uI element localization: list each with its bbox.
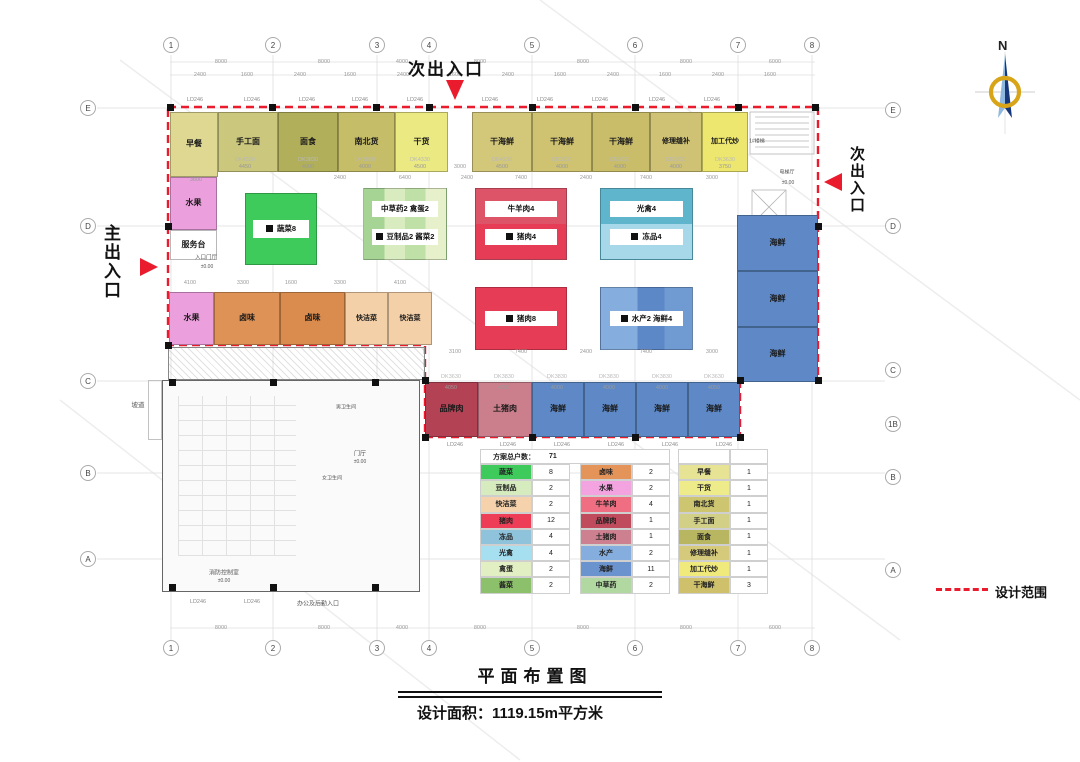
room-label: ±0.00 (201, 264, 213, 270)
table-category-cell: 早餐 (678, 464, 730, 480)
stall: 手工面 (218, 112, 278, 172)
dimension-label: 4450 (239, 164, 251, 170)
dimension-label: 7400 (640, 349, 652, 355)
right-entrance-label: 次出入口 (846, 146, 867, 214)
dimension-label: 2400 (580, 349, 592, 355)
stall-code-label: DK3830 (610, 157, 630, 163)
island-label: 猪肉4 (485, 229, 557, 245)
dimension-label: 3600 (190, 177, 202, 183)
stall-island: 中草药2 禽蛋2豆制品2 酱菜2 (363, 188, 447, 260)
dimension-label: 2400 (334, 175, 346, 181)
grid-bubble: B (885, 469, 901, 485)
dimension-label: 4000 (656, 385, 668, 391)
island-label: 水产2 海鲜4 (610, 311, 683, 327)
window-label: LD246 (190, 599, 206, 605)
island-label: 牛羊肉4 (485, 201, 557, 217)
dimension-label: 2400 (294, 72, 306, 78)
stall: 面食 (278, 112, 338, 172)
grid-bubble: A (885, 562, 901, 578)
table-count-cell: 2 (632, 480, 670, 496)
dimension-label: 3000 (706, 175, 718, 181)
stall-code-label: DK3630 (715, 157, 735, 163)
dimension-label: 6000 (769, 625, 781, 631)
stall-code-label: DK3830 (355, 157, 375, 163)
grid-bubble: 1B (885, 416, 901, 432)
stall: 干海鲜 (472, 112, 532, 172)
grid-bubble: 2 (265, 37, 281, 53)
window-label: LD246 (407, 97, 423, 103)
left-entrance-label: 主出入口 (98, 224, 123, 300)
room-label: 1#楼梯 (749, 138, 765, 145)
table-category-cell: 干海鲜 (678, 577, 730, 593)
table-header-value: 71 (549, 453, 557, 460)
stall: 海鲜 (737, 215, 818, 271)
dimension-label: 7400 (515, 175, 527, 181)
dimension-label: 4000 (302, 164, 314, 170)
window-label: LD246 (537, 97, 553, 103)
stall: 干货 (395, 112, 448, 172)
stall: 快洁菜 (345, 292, 388, 345)
design-scope-legend-line (936, 588, 988, 591)
table-count-cell: 2 (632, 545, 670, 561)
dimension-label: 4000 (498, 385, 510, 391)
window-label: LD246 (352, 97, 368, 103)
window-label: LD246 (554, 442, 570, 448)
grid-bubble: 8 (804, 37, 820, 53)
stall: 南北货 (338, 112, 395, 172)
dimension-label: 3300 (237, 280, 249, 286)
window-label: LD246 (187, 97, 203, 103)
island-marker-icon (621, 315, 628, 322)
column-marker (632, 104, 639, 111)
table-count-cell: 1 (632, 513, 670, 529)
column-marker (737, 377, 744, 384)
column-marker (167, 104, 174, 111)
dimension-label: 8000 (474, 625, 486, 631)
dimension-label: 8000 (680, 59, 692, 65)
room-label: ±0.00 (354, 459, 366, 465)
table-header-empty (678, 449, 730, 464)
stall: 海鲜 (737, 327, 818, 382)
grid-bubble: 4 (421, 37, 437, 53)
stall: 早餐 (170, 112, 218, 177)
table-count-cell: 4 (532, 545, 570, 561)
stall: 水果 (169, 292, 214, 345)
column-marker (372, 584, 379, 591)
dimension-label: 8000 (680, 625, 692, 631)
window-label: LD246 (662, 442, 678, 448)
dimension-label: 1600 (554, 72, 566, 78)
dimension-label: 4000 (556, 164, 568, 170)
island-label-text: 水产2 海鲜4 (632, 313, 672, 324)
dimension-label: 4000 (396, 625, 408, 631)
island-marker-icon (506, 233, 513, 240)
window-label: LD246 (608, 442, 624, 448)
compass-north-label: N (998, 38, 1007, 53)
dimension-label: 4000 (614, 164, 626, 170)
window-label: LD246 (649, 97, 665, 103)
grid-bubble: 3 (369, 640, 385, 656)
column-marker (422, 377, 429, 384)
top-entrance-label: 次出入口 (408, 55, 484, 80)
stall-code-label: DK3830 (547, 374, 567, 380)
dimension-label: 8000 (318, 59, 330, 65)
dimension-label: 8000 (577, 59, 589, 65)
island-label: 中草药2 禽蛋2 (372, 201, 438, 217)
room-label: 门厅 (354, 449, 366, 458)
stall-code-label: DK3830 (599, 374, 619, 380)
plan-layers: 早餐手工面面食南北货干货干海鲜干海鲜干海鲜修理缝补加工代炒水果服务台水果卤味卤味… (0, 0, 1080, 762)
table-count-cell: 1 (730, 529, 768, 545)
table-count-cell: 1 (632, 529, 670, 545)
table-category-cell: 海鲜 (580, 561, 632, 577)
column-marker (815, 223, 822, 230)
grid-bubble: A (80, 551, 96, 567)
table-category-cell: 豆制品 (480, 480, 532, 496)
dimension-label: 6400 (399, 175, 411, 181)
stall-island: 蔬菜8 (245, 193, 317, 265)
room-label: ±0.00 (782, 180, 794, 186)
stall: 卤味 (214, 292, 280, 345)
window-label: LD246 (482, 97, 498, 103)
column-marker (169, 379, 176, 386)
island-marker-icon (266, 225, 273, 232)
table-category-cell: 修理缝补 (678, 545, 730, 561)
grid-bubble: 6 (627, 640, 643, 656)
column-marker (165, 223, 172, 230)
column-marker (815, 377, 822, 384)
island-label-text: 猪肉8 (517, 313, 536, 324)
grid-bubble: B (80, 465, 96, 481)
island-label-text: 蔬菜8 (277, 223, 296, 234)
dimension-label: 4000 (551, 385, 563, 391)
dimension-label: 7400 (640, 175, 652, 181)
dimension-label: 4500 (496, 164, 508, 170)
table-header: 方案总户数：71 (480, 449, 670, 464)
stall: 水果 (170, 177, 217, 230)
window-label: LD246 (500, 442, 516, 448)
dimension-label: 4050 (445, 385, 457, 391)
stall: 快洁菜 (388, 292, 432, 345)
column-marker (737, 434, 744, 441)
table-category-cell: 土猪肉 (580, 529, 632, 545)
dimension-label: 1600 (764, 72, 776, 78)
table-count-cell: 2 (632, 464, 670, 480)
column-marker (165, 342, 172, 349)
table-count-cell: 3 (730, 577, 768, 593)
table-category-cell: 酱菜 (480, 577, 532, 593)
island-label-text: 光禽4 (637, 203, 656, 214)
dimension-label: 3000 (454, 164, 466, 170)
stall-island: 牛羊肉4猪肉4 (475, 188, 567, 260)
table-category-cell: 蔬菜 (480, 464, 532, 480)
dimension-label: 2400 (461, 175, 473, 181)
column-marker (270, 584, 277, 591)
design-area-text: 设计面积：1119.15m平方米 (370, 702, 650, 723)
stall: 修理缝补 (650, 112, 702, 172)
table-header-empty (730, 449, 768, 464)
island-marker-icon (631, 233, 638, 240)
room-label: 入口门厅 (195, 253, 217, 261)
grid-bubble: 7 (730, 37, 746, 53)
dimension-label: 2400 (502, 72, 514, 78)
table-category-cell: 快洁菜 (480, 496, 532, 512)
column-marker (426, 104, 433, 111)
table-header-label: 方案总户数： (493, 452, 535, 462)
table-category-cell: 中草药 (580, 577, 632, 593)
stall-code-label: DK3830 (552, 157, 572, 163)
column-marker (422, 434, 429, 441)
table-category-cell: 加工代炒 (678, 561, 730, 577)
stall-island: 水产2 海鲜4 (600, 287, 693, 350)
grid-bubble: 5 (524, 37, 540, 53)
grid-bubble: E (885, 102, 901, 118)
dimension-label: 1600 (241, 72, 253, 78)
column-marker (735, 104, 742, 111)
table-count-cell: 1 (730, 496, 768, 512)
stall-code-label: DK4330 (492, 157, 512, 163)
table-category-cell: 冻品 (480, 529, 532, 545)
stall-code-label: DK4330 (235, 157, 255, 163)
title-rule-2 (398, 696, 662, 698)
table-count-cell: 2 (532, 577, 570, 593)
grid-bubble: 3 (369, 37, 385, 53)
island-label: 蔬菜8 (253, 220, 309, 238)
grid-bubble: 2 (265, 640, 281, 656)
column-marker (169, 584, 176, 591)
dimension-label: 7400 (515, 349, 527, 355)
grid-bubble: 5 (524, 640, 540, 656)
room-label: 男卫生间 (336, 404, 356, 411)
window-label: LD246 (299, 97, 315, 103)
stall: 干海鲜 (532, 112, 592, 172)
floor-plan-sheet: 早餐手工面面食南北货干货干海鲜干海鲜干海鲜修理缝补加工代炒水果服务台水果卤味卤味… (0, 0, 1080, 762)
dimension-label: 4100 (184, 280, 196, 286)
window-label: LD246 (592, 97, 608, 103)
window-label: LD246 (716, 442, 732, 448)
dimension-label: 1600 (344, 72, 356, 78)
island-label: 猪肉8 (485, 311, 557, 327)
stall-code-label: DK3830 (494, 374, 514, 380)
table-count-cell: 2 (632, 577, 670, 593)
column-marker (270, 379, 277, 386)
dimension-label: 2400 (194, 72, 206, 78)
stall: 海鲜 (737, 271, 818, 327)
dimension-label: 4500 (414, 164, 426, 170)
island-label-text: 豆制品2 酱菜2 (387, 231, 435, 242)
grid-bubble: 4 (421, 640, 437, 656)
grid-bubble: 7 (730, 640, 746, 656)
room-label: 电梯厅 (779, 169, 794, 176)
stall: 加工代炒 (702, 112, 748, 172)
stall-code-label: DK4330 (410, 157, 430, 163)
window-label: LD246 (244, 599, 260, 605)
table-count-cell: 1 (730, 545, 768, 561)
dimension-label: 4000 (396, 59, 408, 65)
table-category-cell: 南北货 (678, 496, 730, 512)
dimension-label: 4100 (394, 280, 406, 286)
dimension-label: 3000 (706, 349, 718, 355)
table-count-cell: 11 (632, 561, 670, 577)
grid-bubble: D (80, 218, 96, 234)
stall-code-label: DK3830 (298, 157, 318, 163)
island-marker-icon (506, 315, 513, 322)
table-category-cell: 品牌肉 (580, 513, 632, 529)
table-category-cell: 面食 (678, 529, 730, 545)
grid-bubble: 1 (163, 640, 179, 656)
room-label: 办公及后勤入口 (297, 599, 339, 608)
island-label-text: 牛羊肉4 (508, 203, 535, 214)
stall: 卤味 (280, 292, 345, 345)
stall-island: 猪肉8 (475, 287, 567, 350)
dimension-label: 2400 (607, 72, 619, 78)
island-label: 豆制品2 酱菜2 (372, 229, 438, 245)
room-label: 女卫生间 (322, 475, 342, 482)
grid-bubble: 8 (804, 640, 820, 656)
table-count-cell: 12 (532, 513, 570, 529)
column-marker (529, 434, 536, 441)
table-count-cell: 2 (532, 480, 570, 496)
dimension-label: 4050 (708, 385, 720, 391)
sheet-title: 平面布置图 (430, 662, 640, 687)
island-label: 光禽4 (610, 201, 683, 217)
table-category-cell: 水产 (580, 545, 632, 561)
stall-code-label: DK3630 (704, 374, 724, 380)
table-count-cell: 1 (730, 464, 768, 480)
room-label: ±0.00 (218, 578, 230, 584)
dimension-label: 8000 (577, 625, 589, 631)
room-label: 坡道 (132, 399, 145, 409)
column-marker (269, 104, 276, 111)
island-label-text: 中草药2 禽蛋2 (381, 203, 429, 214)
grid-bubble: 1 (163, 37, 179, 53)
dimension-label: 2400 (712, 72, 724, 78)
table-count-cell: 1 (730, 480, 768, 496)
island-marker-icon (376, 233, 383, 240)
dimension-label: 1600 (285, 280, 297, 286)
dimension-label: 8000 (215, 59, 227, 65)
dimension-label: 4000 (603, 385, 615, 391)
column-marker (632, 434, 639, 441)
table-category-cell: 干货 (678, 480, 730, 496)
table-category-cell: 禽蛋 (480, 561, 532, 577)
dimension-label: 3100 (449, 349, 461, 355)
table-count-cell: 1 (730, 561, 768, 577)
table-count-cell: 1 (730, 513, 768, 529)
table-category-cell: 水果 (580, 480, 632, 496)
window-label: LD246 (704, 97, 720, 103)
dimension-label: 4000 (359, 164, 371, 170)
island-label-text: 猪肉4 (517, 231, 536, 242)
table-count-cell: 8 (532, 464, 570, 480)
dimension-label: 6000 (769, 59, 781, 65)
stall-code-label: DK3630 (441, 374, 461, 380)
window-label: LD246 (244, 97, 260, 103)
dimension-label: 2400 (580, 175, 592, 181)
grid-bubble: E (80, 100, 96, 116)
table-count-cell: 4 (632, 496, 670, 512)
grid-bubble: D (885, 218, 901, 234)
dimension-label: 3300 (334, 280, 346, 286)
dimension-label: 8000 (318, 625, 330, 631)
stall-island: 光禽4冻品4 (600, 188, 693, 260)
dimension-label: 3750 (719, 164, 731, 170)
grid-bubble: C (885, 362, 901, 378)
table-count-cell: 4 (532, 529, 570, 545)
table-category-cell: 卤味 (580, 464, 632, 480)
table-count-cell: 2 (532, 496, 570, 512)
design-scope-legend-label: 设计范围 (995, 582, 1047, 601)
dimension-label: 4000 (670, 164, 682, 170)
stall: 干海鲜 (592, 112, 650, 172)
table-count-cell: 2 (532, 561, 570, 577)
column-marker (373, 104, 380, 111)
grid-bubble: 6 (627, 37, 643, 53)
table-category-cell: 牛羊肉 (580, 496, 632, 512)
column-marker (812, 104, 819, 111)
table-category-cell: 猪肉 (480, 513, 532, 529)
island-label-text: 冻品4 (642, 231, 661, 242)
stall-summary-table: 方案总户数：71蔬菜8豆制品2快洁菜2猪肉12冻品4光禽4禽蛋2酱菜2卤味2水果… (468, 449, 774, 597)
table-category-cell: 光禽 (480, 545, 532, 561)
column-marker (372, 379, 379, 386)
grid-bubble: C (80, 373, 96, 389)
dimension-label: 8000 (215, 625, 227, 631)
stall-code-label: DK3830 (652, 374, 672, 380)
room-label: 消防控制室 (209, 568, 239, 577)
table-category-cell: 手工面 (678, 513, 730, 529)
island-label: 冻品4 (610, 229, 683, 245)
column-marker (529, 104, 536, 111)
window-label: LD246 (447, 442, 463, 448)
stall-code-label: DK3830 (666, 157, 686, 163)
title-rule-1 (398, 691, 662, 693)
dimension-label: 1600 (659, 72, 671, 78)
